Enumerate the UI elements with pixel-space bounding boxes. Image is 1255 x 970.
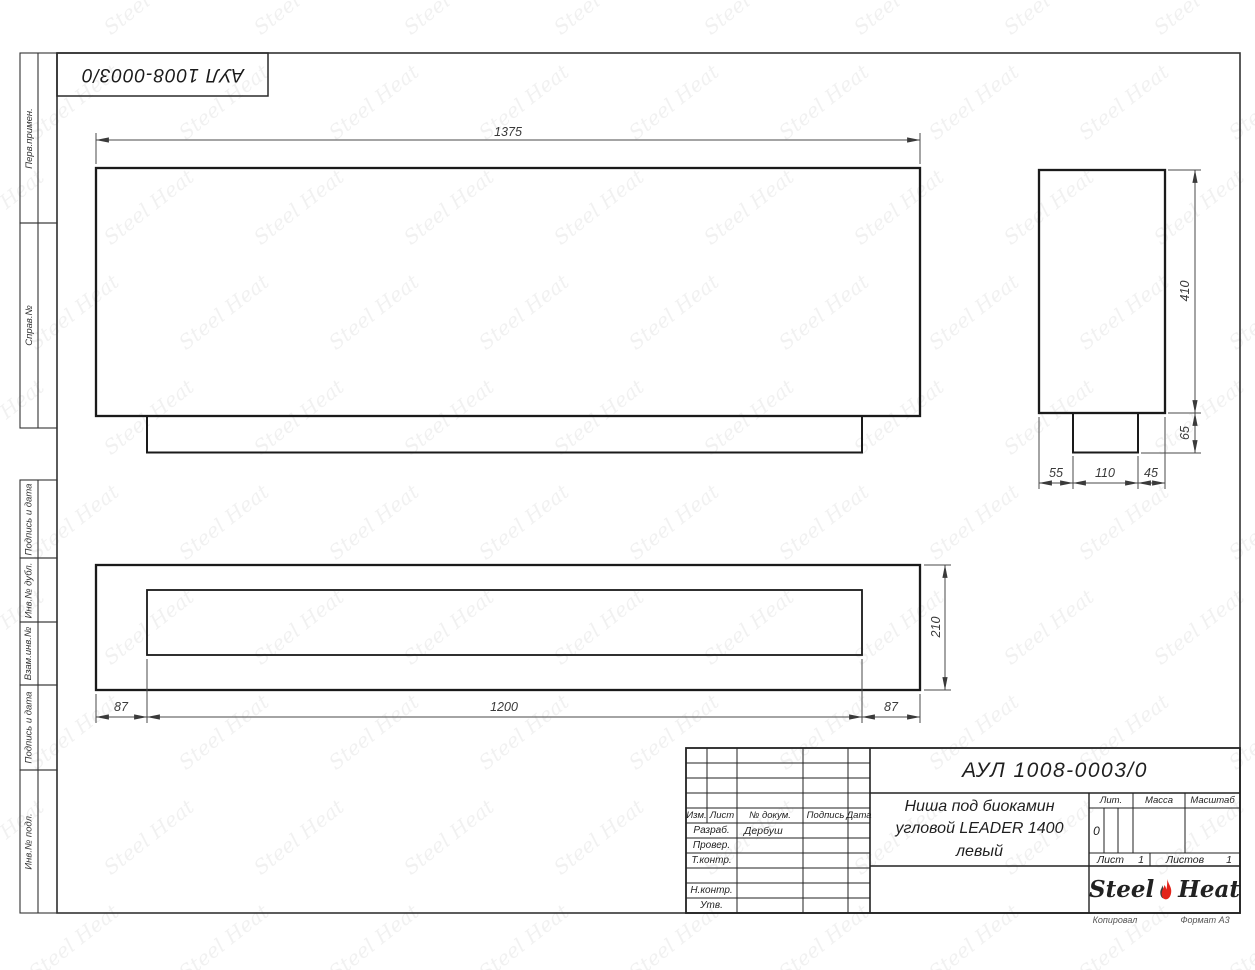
dim-top-bottom-2: 1200 (490, 700, 518, 714)
col-header-podpis: Подпись (803, 808, 848, 823)
side-view-outline (1039, 170, 1165, 453)
part-name-line-1: Ниша под биокамин (905, 796, 1055, 818)
dim-side-bottom-2: 110 (1095, 466, 1115, 480)
dim-front-width: 1375 (494, 125, 522, 139)
col-header-list: Лист (707, 808, 737, 823)
top-view-outline (96, 565, 920, 690)
col-header-dokum: № докум. (737, 808, 803, 823)
row-label-nkontr: Н.контр. (686, 883, 737, 898)
listov-label: Листов (1150, 854, 1220, 866)
lit-value: 0 (1089, 808, 1104, 853)
strip-label-inv-dubl: Инв.№ дубл. (20, 558, 38, 622)
strip-label-sprav-no: Справ.№ (20, 223, 38, 428)
dim-side-foot-height: 65 (1178, 426, 1192, 440)
list-value: 1 (1132, 854, 1150, 866)
col-header-data: Дата (848, 808, 870, 823)
top-view-dimensions (96, 565, 951, 723)
dim-side-height: 410 (1178, 281, 1192, 302)
col-header-izm: Изм. (686, 808, 707, 823)
company-logo: Steel Heat (1089, 866, 1240, 913)
massa-header: Масса (1133, 793, 1185, 808)
strip-label-podpis-data-1: Подпись и дата (20, 480, 38, 558)
row-label-tkontr: Т.контр. (686, 853, 737, 868)
side-view-dimensions (1039, 170, 1201, 489)
drawing-sheet: Steel HeatSteel HeatSteel HeatSteel Heat… (0, 0, 1255, 970)
strip-label-inv-podl: Инв.№ подл. (20, 770, 38, 913)
row-value-razrab: Дербуш (737, 823, 803, 838)
title-block-part-name: Ниша под биокамин угловой LEADER 1400 ле… (870, 793, 1089, 866)
listov-cell: Листов 1 (1150, 853, 1238, 866)
title-block: АУЛ 1008-0003/0 Ниша под биокамин углово… (686, 748, 1240, 913)
strip-label-perv-primen: Перв.примен. (20, 53, 38, 223)
dim-top-bottom-3: 87 (884, 700, 899, 714)
flame-icon (1157, 875, 1175, 905)
dim-side-bottom-3: 45 (1144, 466, 1158, 480)
dim-top-depth: 210 (929, 617, 943, 639)
strip-label-vzam-inv: Взам.инв.№ (20, 622, 38, 685)
strip-label-podpis-data-2: Подпись и дата (20, 685, 38, 770)
masshtab-header: Масштаб (1185, 793, 1240, 808)
front-view-outline (96, 168, 920, 453)
part-name-line-2: угловой LEADER 1400 (896, 818, 1064, 840)
list-label: Лист (1089, 854, 1132, 866)
doc-number-rotated: АУЛ 1008-0003/0 (57, 53, 268, 96)
copied-by-label: Копировал (1060, 915, 1170, 925)
row-label-prover: Провер. (686, 838, 737, 853)
lit-header: Лит. (1089, 793, 1133, 808)
row-label-utv: Утв. (686, 898, 737, 913)
dim-side-bottom-1: 55 (1049, 466, 1063, 480)
title-block-doc-number: АУЛ 1008-0003/0 (870, 748, 1240, 793)
format-label: Формат А3 (1172, 915, 1238, 925)
list-cell: Лист 1 (1089, 853, 1150, 866)
row-label-razrab: Разраб. (686, 823, 737, 838)
logo-word-steel: Steel (1089, 876, 1154, 903)
listov-value: 1 (1220, 854, 1238, 866)
part-name-line-3: левый (956, 841, 1003, 863)
logo-word-heat: Heat (1178, 876, 1240, 903)
dim-top-bottom-1: 87 (114, 700, 129, 714)
